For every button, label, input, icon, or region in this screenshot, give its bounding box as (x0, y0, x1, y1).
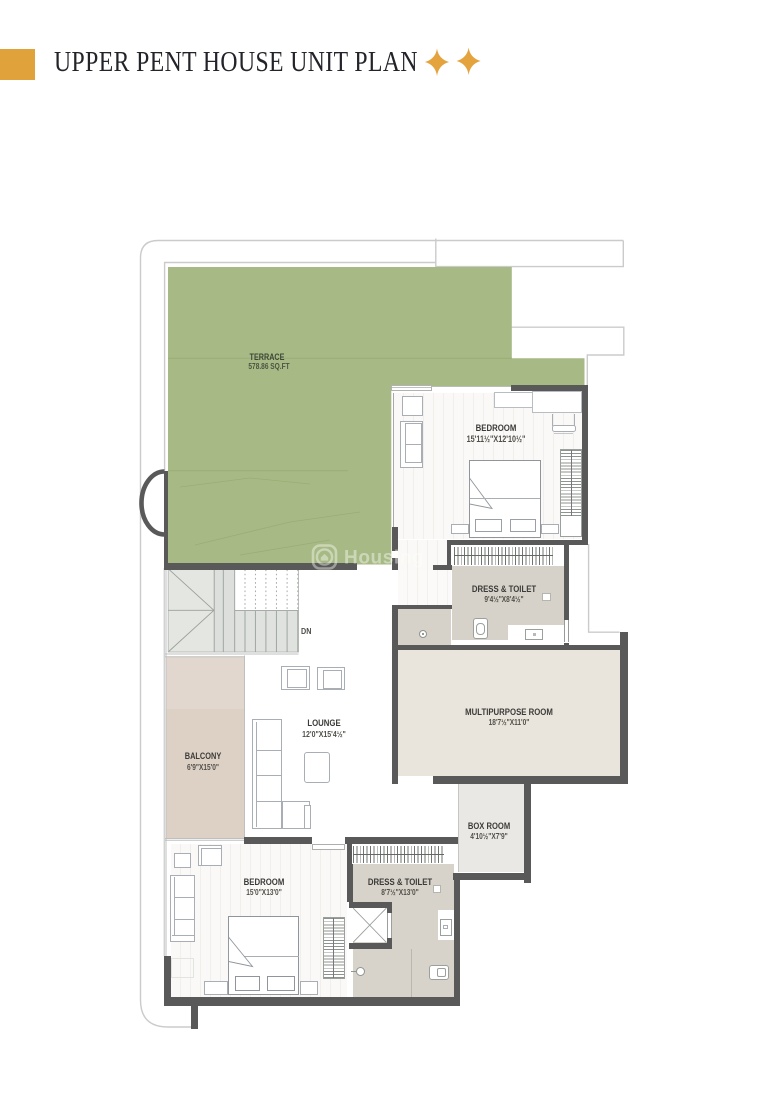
svg-text:Housing: Housing (344, 548, 424, 569)
